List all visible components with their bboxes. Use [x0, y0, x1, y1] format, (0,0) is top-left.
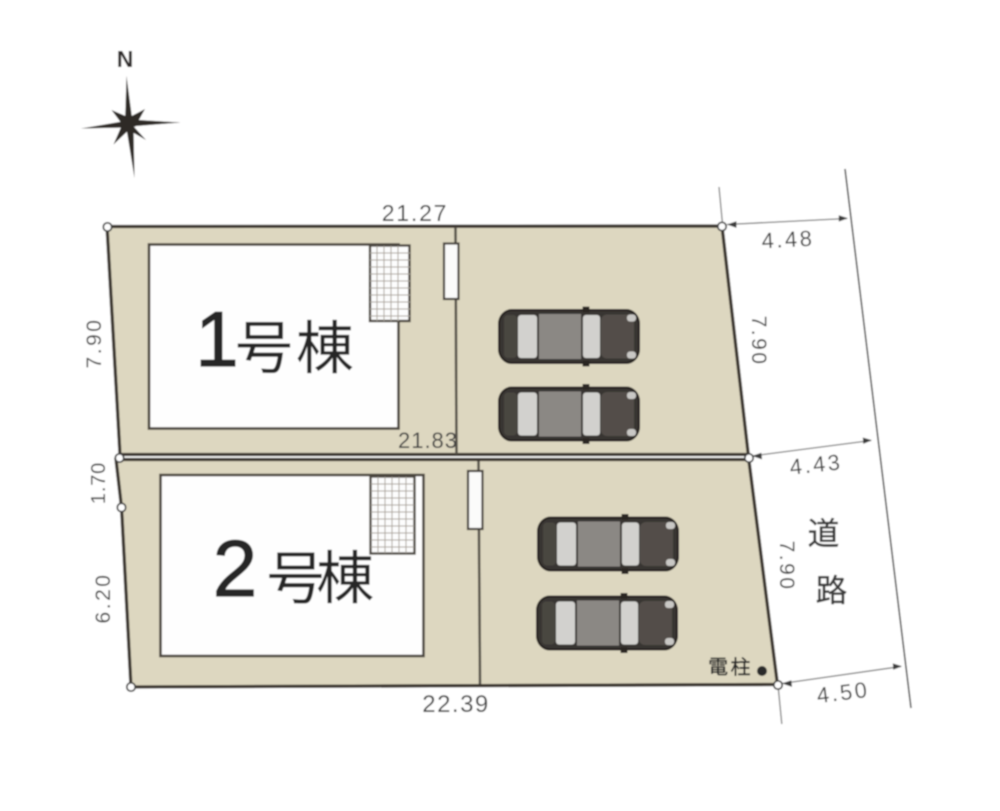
svg-text:4.48: 4.48 [761, 226, 815, 254]
svg-text:2: 2 [213, 524, 258, 613]
svg-text:21.27: 21.27 [382, 200, 449, 226]
svg-text:1.70: 1.70 [88, 462, 110, 504]
svg-text:7.90: 7.90 [83, 318, 106, 369]
svg-text:21.83: 21.83 [398, 428, 458, 453]
svg-text:7.90: 7.90 [775, 541, 798, 592]
svg-text:7.90: 7.90 [747, 316, 770, 367]
svg-text:1: 1 [195, 295, 238, 383]
svg-text:N: N [117, 46, 134, 72]
svg-text:22.39: 22.39 [422, 691, 490, 718]
svg-text:6.20: 6.20 [92, 573, 115, 624]
